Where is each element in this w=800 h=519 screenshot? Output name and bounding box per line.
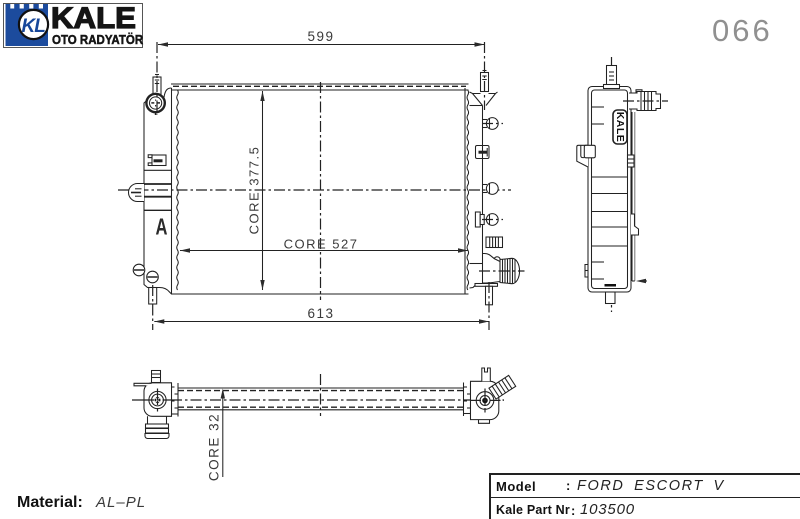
svg-text:599: 599 (307, 29, 334, 44)
svg-text:KALE: KALE (614, 112, 626, 143)
svg-text:CORE 527: CORE 527 (284, 237, 359, 252)
svg-text:A: A (156, 215, 168, 240)
svg-text:CORE 32: CORE 32 (207, 413, 222, 481)
svg-text:CORE 377.5: CORE 377.5 (247, 146, 262, 235)
svg-text:613: 613 (307, 306, 334, 321)
